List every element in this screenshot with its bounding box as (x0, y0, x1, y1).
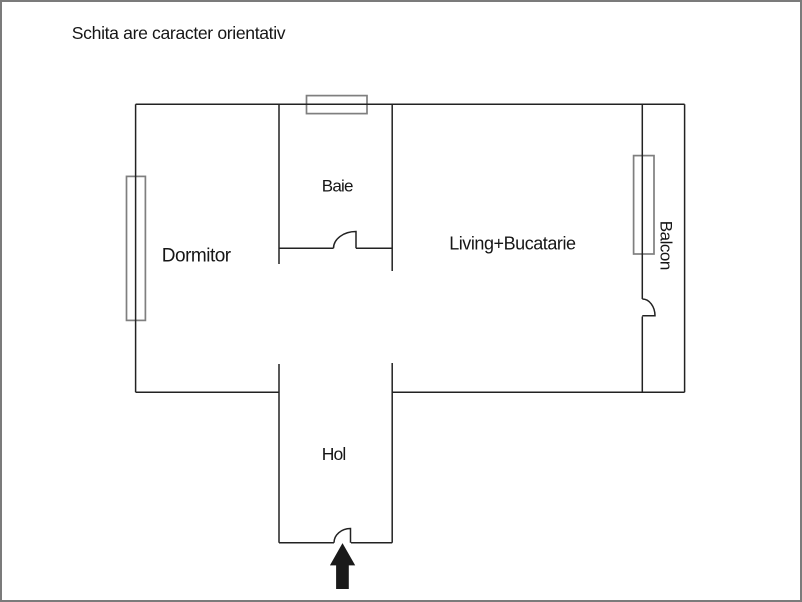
svg-text:Dormitor: Dormitor (162, 246, 232, 267)
svg-text:Baie: Baie (322, 176, 353, 195)
svg-text:Balcon: Balcon (657, 221, 676, 270)
svg-text:Schita are caracter orientativ: Schita are caracter orientativ (72, 23, 286, 43)
svg-text:Hol: Hol (322, 444, 346, 464)
svg-text:Living+Bucatarie: Living+Bucatarie (449, 233, 576, 253)
